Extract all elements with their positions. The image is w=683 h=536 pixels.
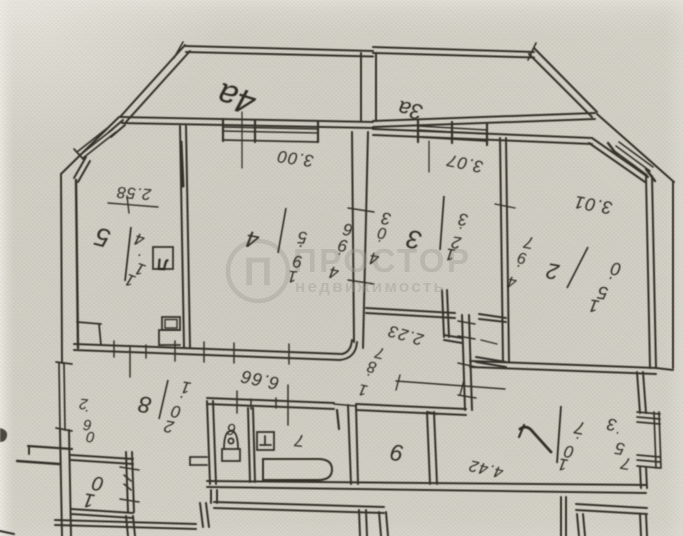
svg-text:6.66: 6.66	[239, 366, 281, 394]
svg-text:2.23: 2.23	[386, 321, 427, 349]
svg-text:2: 2	[544, 258, 561, 285]
svg-text:5: 5	[91, 221, 113, 254]
svg-text:2.58: 2.58	[116, 183, 153, 202]
svg-text:8: 8	[137, 391, 153, 419]
svg-text:9: 9	[389, 439, 405, 467]
svg-text:3.01: 3.01	[572, 192, 614, 218]
svg-text:3.00: 3.00	[276, 146, 315, 170]
svg-text:0: 0	[91, 471, 106, 495]
svg-text:7: 7	[522, 232, 535, 252]
svg-text:3: 3	[380, 208, 393, 228]
svg-text:0: 0	[562, 441, 575, 461]
svg-text:0: 0	[609, 258, 622, 279]
svg-text:П: П	[244, 250, 273, 294]
svg-text:4.42: 4.42	[467, 456, 505, 480]
svg-text:3.07: 3.07	[445, 150, 485, 176]
svg-text:3: 3	[457, 209, 470, 229]
svg-text:недвижимость: недвижимость	[295, 277, 446, 296]
svg-text:7: 7	[373, 343, 386, 362]
svg-text:5: 5	[296, 228, 308, 248]
svg-text:4: 4	[133, 229, 147, 250]
svg-text:6: 6	[341, 219, 354, 239]
svg-text:7: 7	[293, 431, 305, 451]
svg-text:Л: Л	[156, 255, 169, 273]
svg-text:6: 6	[226, 420, 236, 438]
svg-text:4а: 4а	[213, 75, 260, 122]
svg-text:3а: 3а	[396, 96, 425, 126]
svg-text:1: 1	[180, 377, 193, 397]
svg-text:7: 7	[572, 417, 586, 439]
